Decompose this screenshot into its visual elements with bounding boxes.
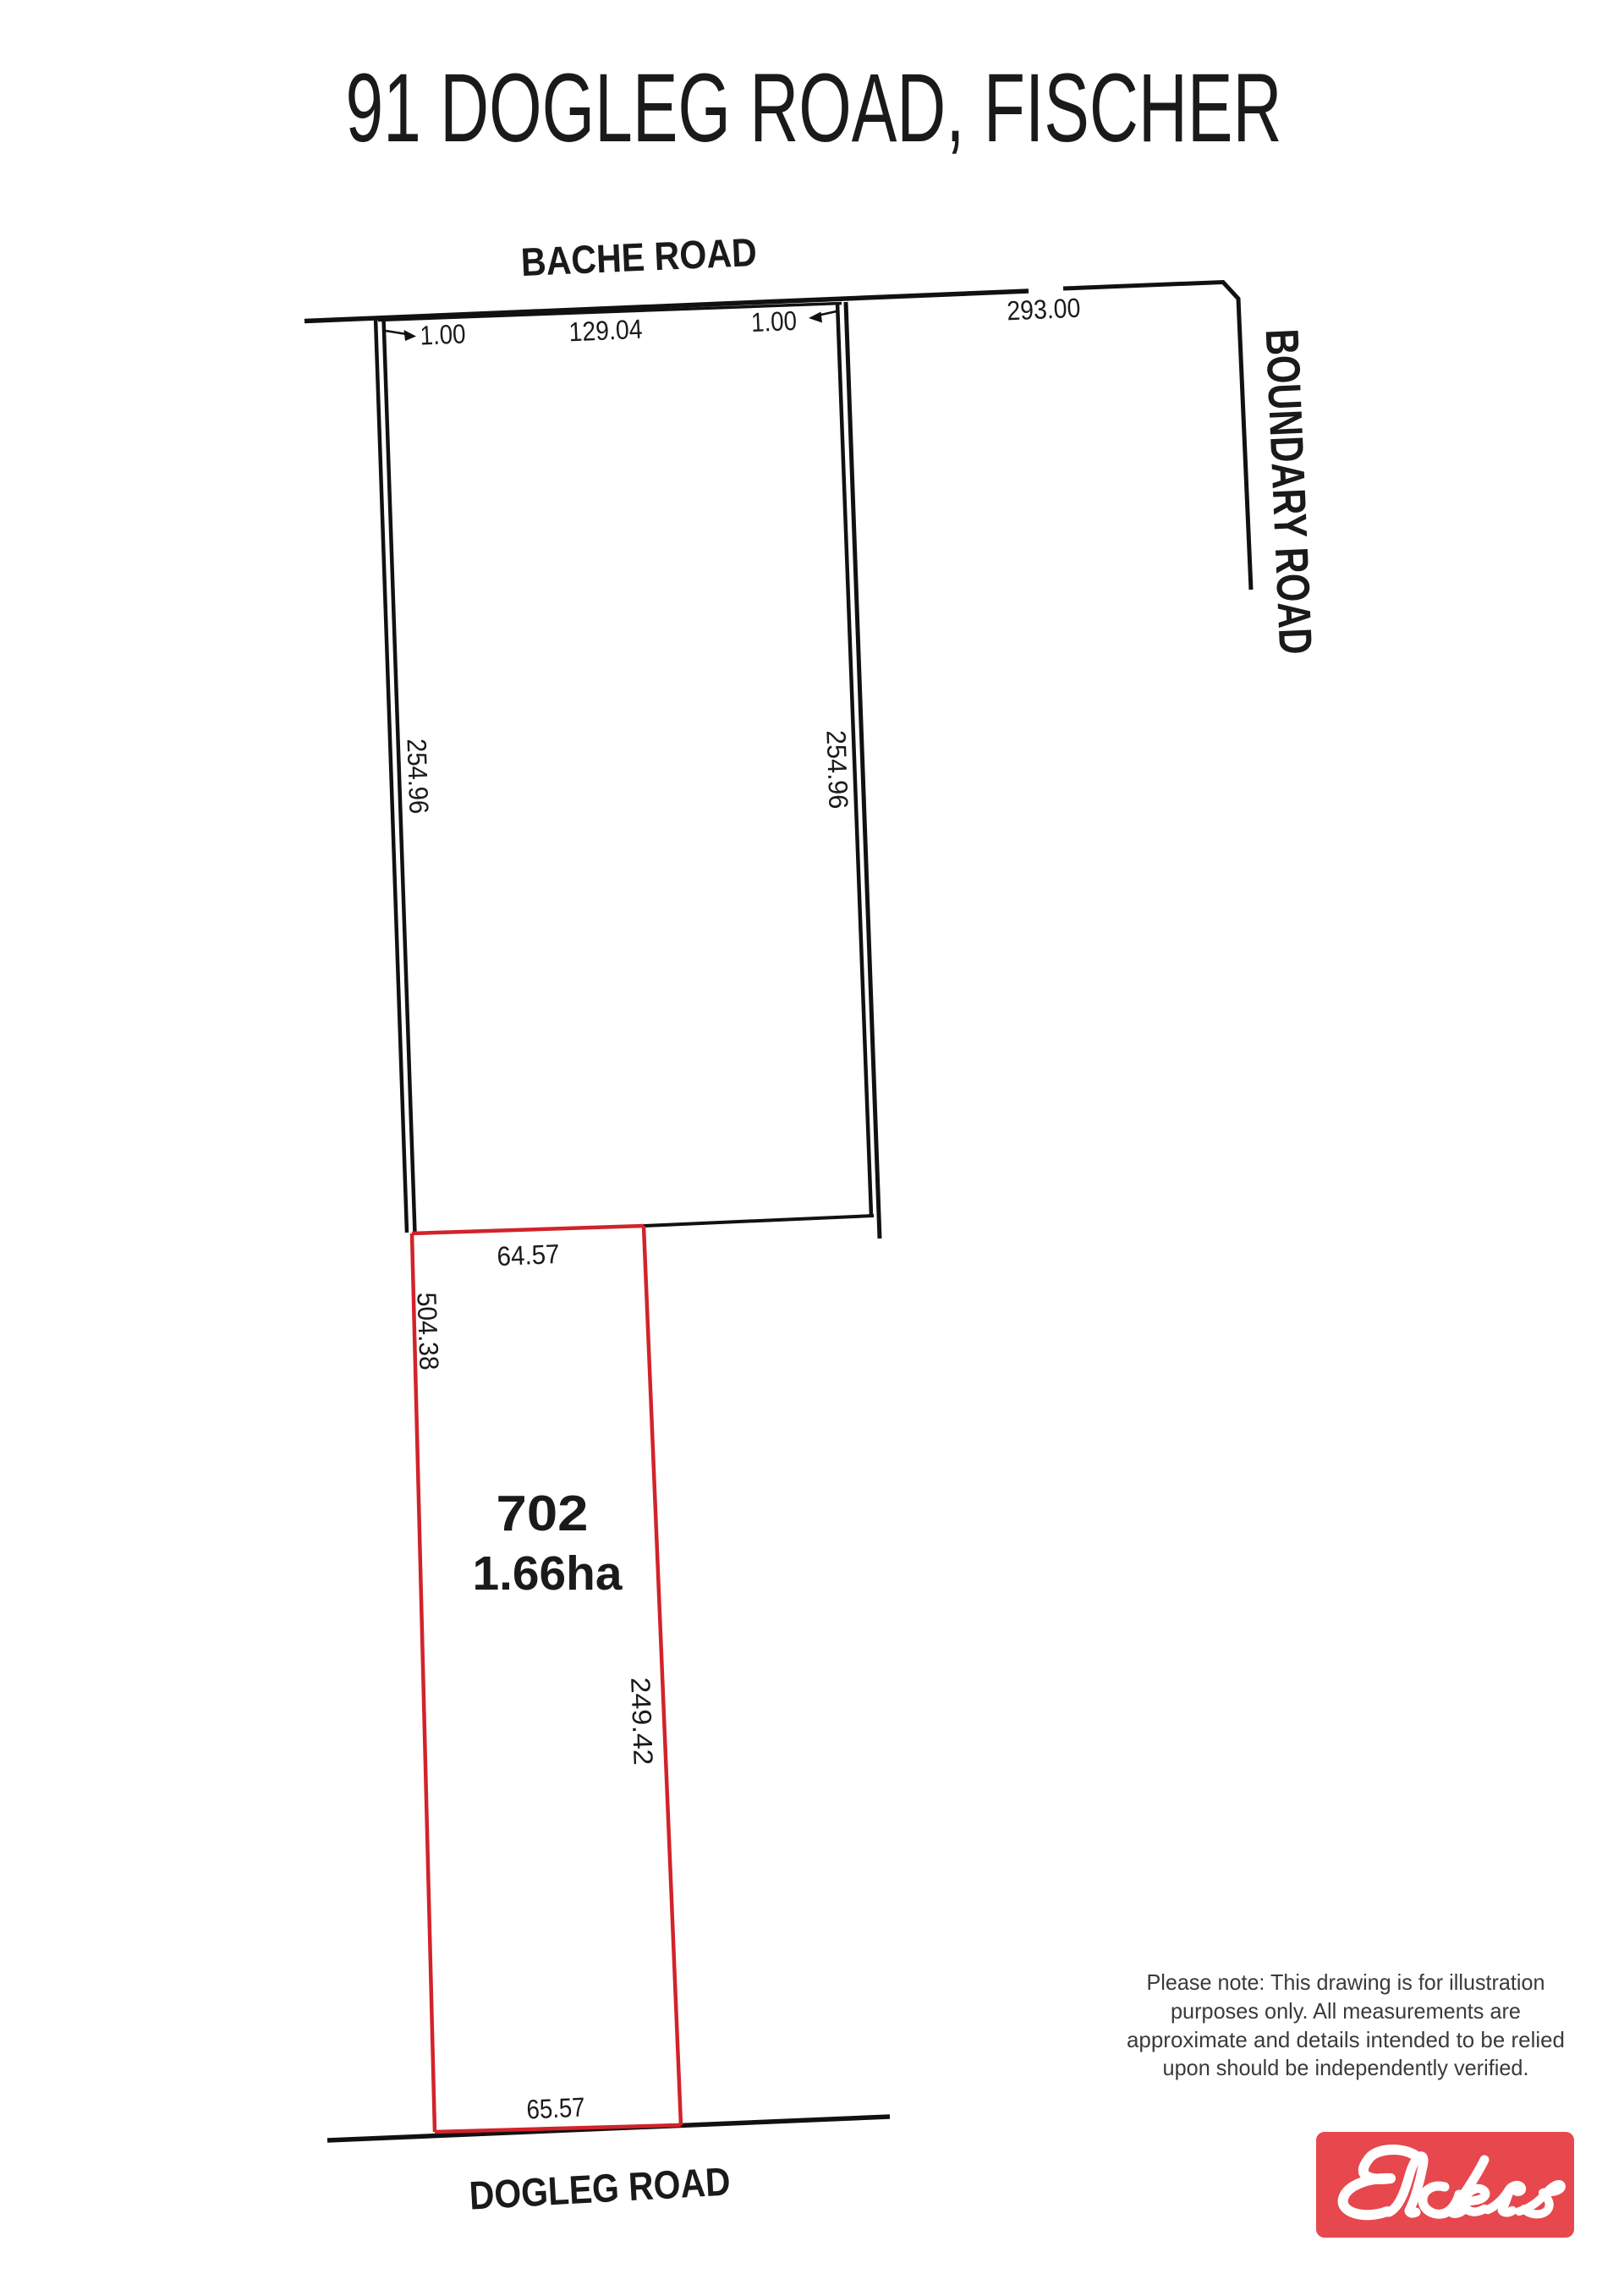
- svg-text:65.57: 65.57: [526, 2092, 586, 2125]
- svg-text:purposes only. All measurement: purposes only. All measurements are: [1171, 1998, 1521, 2024]
- svg-text:91 DOGLEG ROAD, FISCHER: 91 DOGLEG ROAD, FISCHER: [346, 54, 1282, 162]
- svg-text:293.00: 293.00: [1007, 293, 1081, 327]
- svg-text:1.00: 1.00: [420, 318, 467, 350]
- svg-text:1.00: 1.00: [750, 305, 798, 338]
- svg-text:upon should be independently v: upon should be independently verified.: [1163, 2055, 1529, 2080]
- svg-text:702: 702: [497, 1486, 589, 1541]
- svg-text:129.04: 129.04: [568, 314, 643, 348]
- svg-text:254.96: 254.96: [820, 730, 853, 810]
- svg-text:approximate and details intend: approximate and details intended to be r…: [1127, 2027, 1565, 2052]
- svg-text:504.38: 504.38: [411, 1292, 444, 1370]
- svg-text:Please note: This drawing is f: Please note: This drawing is for illustr…: [1147, 1969, 1545, 1995]
- svg-text:1.66ha: 1.66ha: [473, 1546, 623, 1601]
- svg-text:64.57: 64.57: [497, 1239, 560, 1272]
- svg-text:249.42: 249.42: [625, 1677, 659, 1766]
- svg-text:254.96: 254.96: [401, 739, 434, 815]
